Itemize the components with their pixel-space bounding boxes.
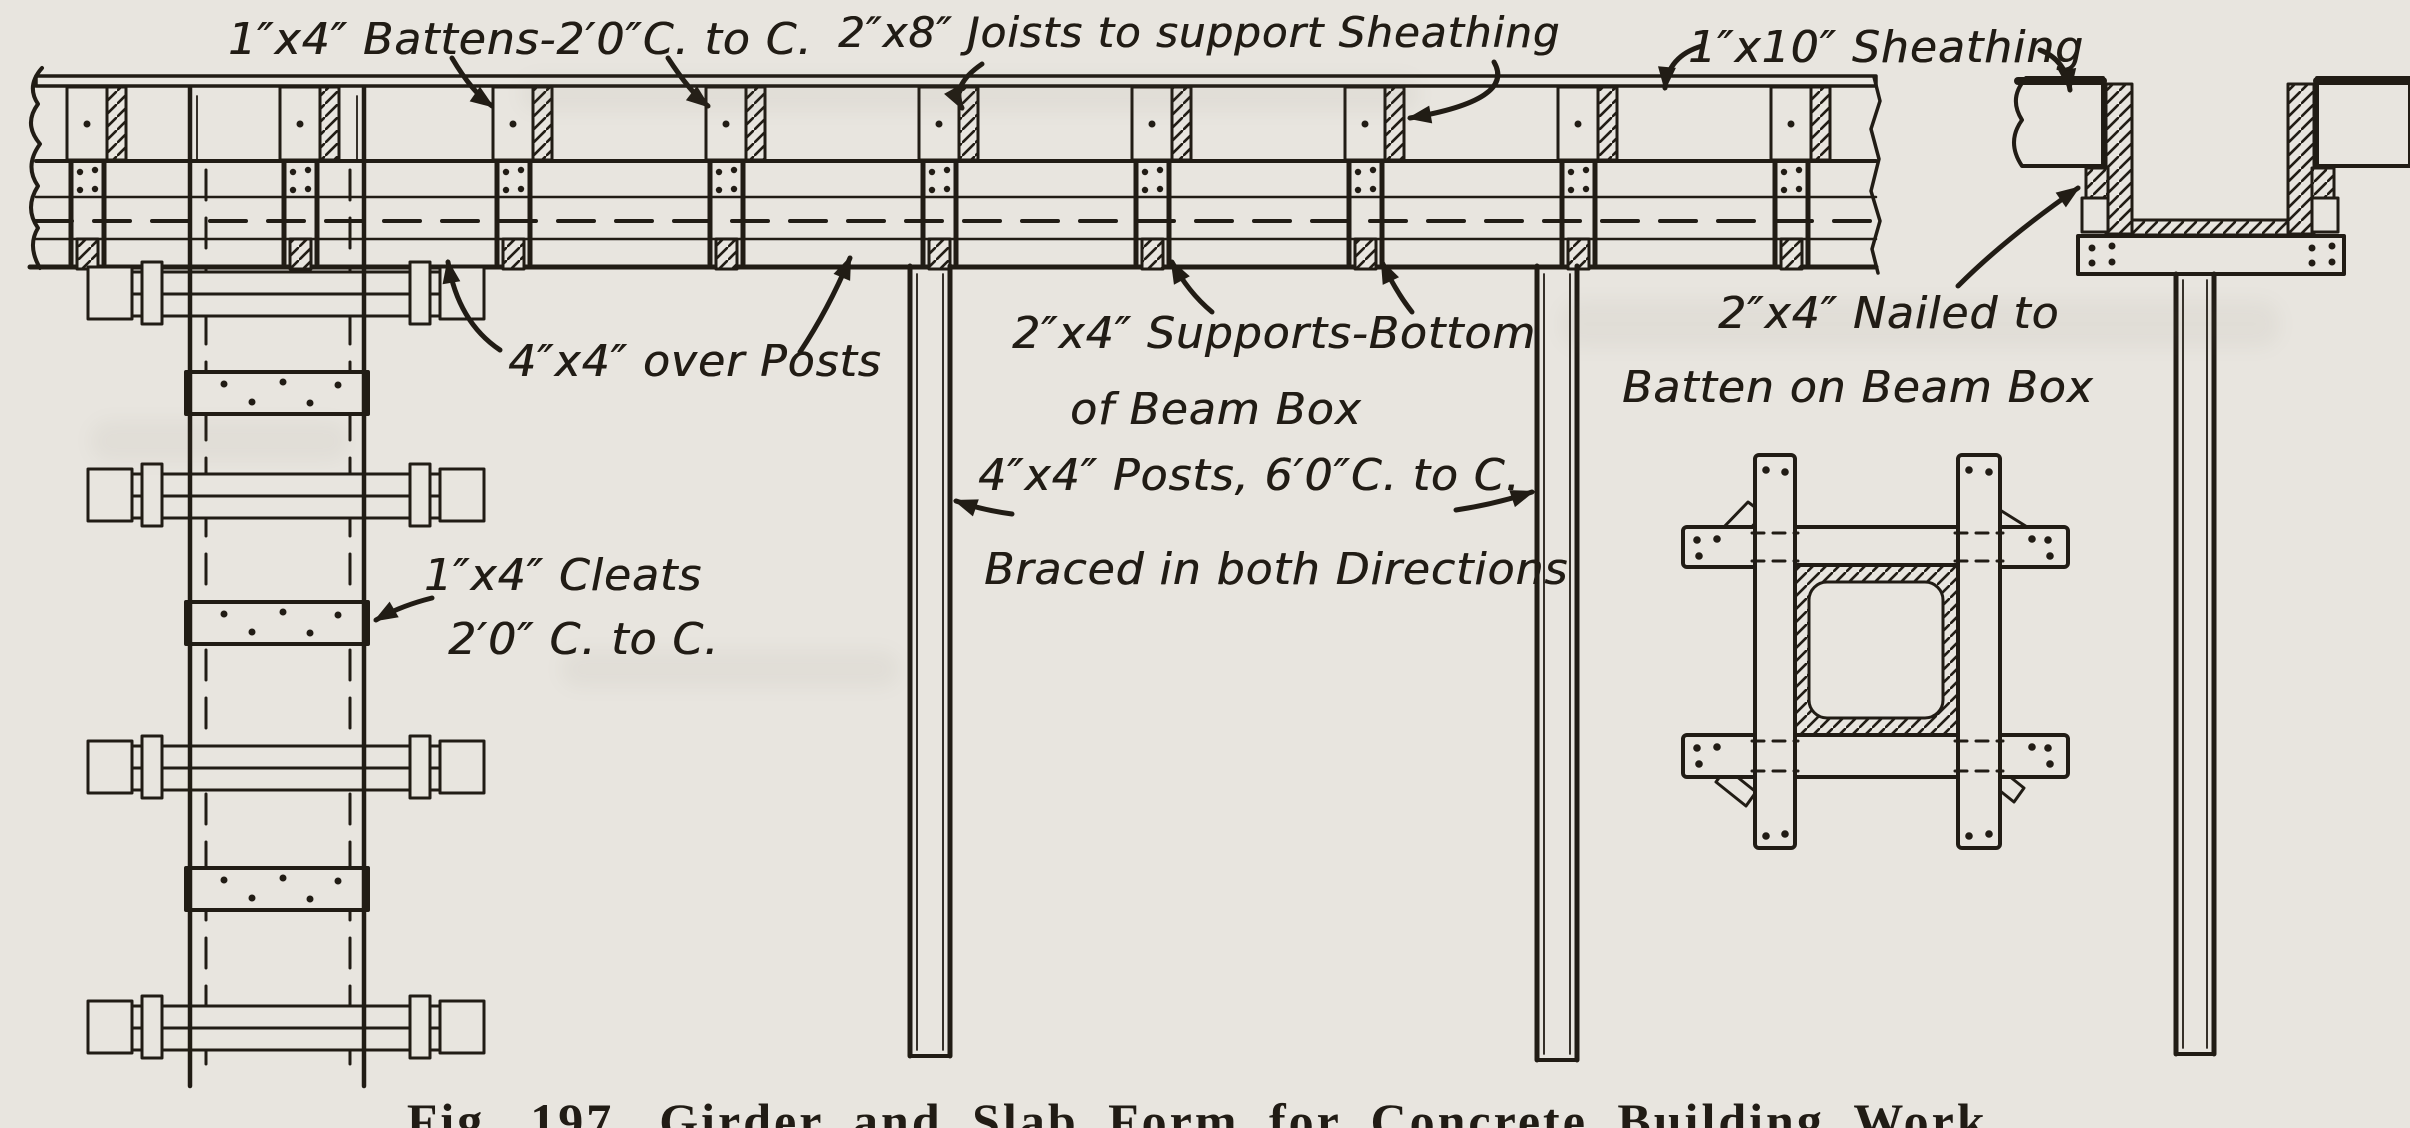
paper-smudge [90, 420, 350, 462]
annotation-over-posts: 4″x4″ over Posts [508, 336, 882, 387]
nailed-arrow [1958, 188, 2078, 286]
beam-bottom-board [2132, 220, 2288, 235]
clamp-board-left [1755, 455, 1795, 848]
batten-block-right [2312, 198, 2338, 232]
post-left [910, 266, 950, 1056]
band-broken-end [1871, 77, 1880, 273]
column-core [1809, 582, 1943, 718]
annotation-joists: 2″x8″ Joists to support Sheathing [838, 8, 1560, 57]
figure-caption: Fig. 197. Girder and Slab Form for Concr… [407, 1092, 2003, 1128]
annotation-cleats: 1″x4″ Cleats2′0″ C. to C. [424, 550, 719, 665]
paper-smudge [520, 76, 1420, 112]
annotation-supports: 2″x4″ Supports-Bottomof Beam Box [1012, 308, 1536, 435]
clamp-board-bottom [1683, 735, 2068, 777]
beam-side-sheathing-right [2288, 84, 2314, 234]
batten-joist-hanger-row [67, 87, 1830, 269]
joists-arrow [1410, 62, 1498, 118]
annotation-sheathing: 1″x10″ Sheathing [1688, 22, 2084, 73]
beam-side-sheathing-left [2106, 84, 2132, 234]
beam-bottom-support [2078, 236, 2344, 274]
nailed-2x4-right [2312, 168, 2334, 198]
scanned-figure-page: 1″x4″ Battens-2′0″C. to C.2″x8″ Joists t… [0, 0, 2410, 1128]
clamp-board-top [1683, 527, 2068, 567]
post-right [1537, 266, 1577, 1060]
annotation-nailed: 2″x4″ Nailed toBatten on Beam Box [1622, 288, 2094, 413]
annotation-battens: 1″x4″ Battens-2′0″C. to C. [228, 14, 812, 65]
nailed-2x4-left [2086, 168, 2108, 198]
batten-block-left [2082, 198, 2108, 232]
post-plan-detail [1683, 455, 2068, 848]
slab-block-right [2317, 78, 2410, 166]
beam-box-section [2014, 78, 2410, 1054]
clamp-board-right [1958, 455, 2000, 848]
battens-arrow [452, 58, 492, 106]
annotation-posts-braced: 4″x4″ Posts, 6′0″C. to C.Braced in both … [978, 450, 1568, 595]
slab-block-left [2014, 78, 2103, 166]
